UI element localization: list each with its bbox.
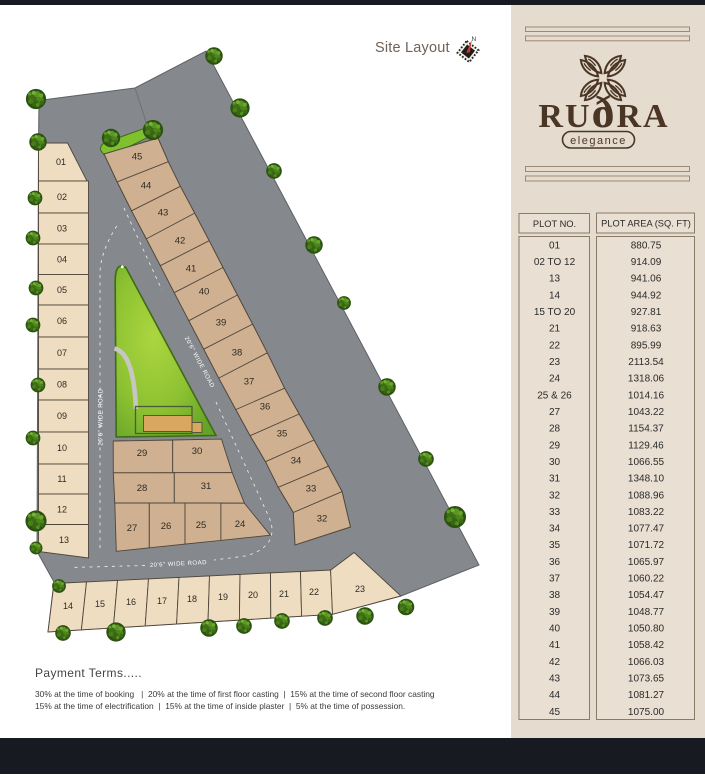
svg-text:880.75: 880.75 — [631, 240, 662, 251]
svg-text:1075.00: 1075.00 — [628, 707, 665, 718]
svg-text:30: 30 — [549, 457, 561, 468]
svg-text:Site Layout: Site Layout — [375, 40, 450, 56]
svg-text:35: 35 — [549, 540, 561, 551]
svg-text:18: 18 — [187, 594, 197, 604]
svg-text:03: 03 — [57, 224, 67, 234]
svg-text:36: 36 — [549, 557, 561, 568]
svg-text:43: 43 — [158, 208, 169, 219]
svg-text:30% at the time of booking |: 30% at the time of booking | 20% at the … — [35, 689, 435, 699]
svg-text:42: 42 — [175, 236, 186, 247]
svg-text:1318.06: 1318.06 — [628, 374, 665, 385]
svg-text:31: 31 — [201, 481, 212, 492]
svg-text:PLOT AREA (SQ. FT): PLOT AREA (SQ. FT) — [601, 219, 691, 229]
svg-text:1043.22: 1043.22 — [628, 407, 665, 418]
svg-text:44: 44 — [141, 181, 152, 192]
svg-text:01: 01 — [56, 157, 66, 167]
svg-text:1065.97: 1065.97 — [628, 557, 665, 568]
svg-text:1054.47: 1054.47 — [628, 590, 665, 601]
svg-text:PLOT NO.: PLOT NO. — [533, 219, 576, 229]
svg-text:45: 45 — [132, 152, 143, 163]
svg-text:20: 20 — [248, 590, 258, 600]
svg-text:02: 02 — [57, 192, 67, 202]
svg-text:2113.54: 2113.54 — [628, 357, 664, 368]
svg-text:25: 25 — [196, 520, 207, 531]
svg-text:10: 10 — [57, 443, 67, 453]
svg-text:44: 44 — [549, 690, 561, 701]
svg-text:13: 13 — [59, 535, 69, 545]
svg-text:25 & 26: 25 & 26 — [537, 390, 572, 401]
svg-text:24: 24 — [549, 374, 561, 385]
svg-text:38: 38 — [549, 590, 561, 601]
svg-text:40: 40 — [199, 287, 210, 298]
svg-text:37: 37 — [244, 377, 255, 388]
svg-text:39: 39 — [216, 318, 227, 329]
svg-text:35: 35 — [277, 429, 288, 440]
svg-text:21: 21 — [279, 589, 289, 599]
svg-text:32: 32 — [549, 490, 561, 501]
svg-text:1050.80: 1050.80 — [628, 624, 665, 635]
svg-text:1066.03: 1066.03 — [628, 657, 665, 668]
svg-text:15: 15 — [95, 599, 105, 609]
svg-text:Payment Terms.....: Payment Terms..... — [35, 666, 142, 680]
svg-text:13: 13 — [549, 274, 561, 285]
svg-text:17: 17 — [157, 596, 167, 606]
svg-text:15% at the time of electrifica: 15% at the time of electrification | 15%… — [35, 701, 405, 711]
svg-text:895.99: 895.99 — [631, 340, 662, 351]
svg-text:1129.46: 1129.46 — [628, 440, 664, 451]
svg-text:42: 42 — [549, 657, 561, 668]
svg-text:11: 11 — [57, 474, 66, 484]
svg-text:1077.47: 1077.47 — [628, 524, 665, 535]
svg-text:918.63: 918.63 — [631, 324, 662, 335]
svg-text:04: 04 — [57, 254, 67, 264]
svg-text:941.06: 941.06 — [631, 274, 662, 285]
svg-text:14: 14 — [63, 601, 73, 611]
svg-text:N: N — [472, 36, 477, 43]
svg-text:elegance: elegance — [570, 135, 627, 147]
svg-text:27: 27 — [549, 407, 561, 418]
svg-text:07: 07 — [57, 348, 67, 358]
svg-text:26: 26 — [161, 521, 172, 532]
svg-text:34: 34 — [549, 524, 561, 535]
svg-text:38: 38 — [232, 348, 243, 359]
svg-text:33: 33 — [549, 507, 561, 518]
svg-text:36: 36 — [260, 402, 271, 413]
svg-text:29: 29 — [137, 448, 148, 459]
svg-text:01: 01 — [549, 240, 561, 251]
svg-text:914.09: 914.09 — [631, 257, 662, 268]
svg-text:37: 37 — [549, 574, 561, 585]
svg-text:1073.65: 1073.65 — [628, 674, 665, 685]
svg-text:1088.96: 1088.96 — [628, 490, 665, 501]
svg-text:22: 22 — [549, 340, 561, 351]
svg-text:02 TO 12: 02 TO 12 — [534, 257, 576, 268]
svg-text:1154.37: 1154.37 — [628, 424, 664, 435]
svg-text:15 TO 20: 15 TO 20 — [534, 307, 576, 318]
svg-text:1066.55: 1066.55 — [628, 457, 665, 468]
svg-text:19: 19 — [218, 592, 228, 602]
svg-text:09: 09 — [57, 411, 67, 421]
svg-text:45: 45 — [549, 707, 561, 718]
svg-text:32: 32 — [317, 514, 328, 525]
svg-text:16: 16 — [126, 597, 136, 607]
svg-text:20'6" WIDE ROAD: 20'6" WIDE ROAD — [99, 388, 105, 445]
svg-text:40: 40 — [549, 624, 561, 635]
svg-text:28: 28 — [137, 483, 148, 494]
svg-text:06: 06 — [57, 316, 67, 326]
svg-text:41: 41 — [186, 264, 197, 275]
svg-text:08: 08 — [57, 380, 67, 390]
svg-text:33: 33 — [306, 484, 317, 495]
svg-text:1060.22: 1060.22 — [628, 574, 665, 585]
svg-text:1014.16: 1014.16 — [628, 390, 665, 401]
svg-text:41: 41 — [549, 640, 561, 651]
svg-text:27: 27 — [127, 523, 138, 534]
svg-text:05: 05 — [57, 285, 67, 295]
svg-text:14: 14 — [549, 290, 561, 301]
svg-text:28: 28 — [549, 424, 561, 435]
svg-text:34: 34 — [291, 456, 302, 467]
svg-text:927.81: 927.81 — [631, 307, 662, 318]
svg-text:24: 24 — [235, 519, 246, 530]
svg-text:21: 21 — [549, 324, 561, 335]
svg-text:1048.77: 1048.77 — [628, 607, 665, 618]
svg-text:31: 31 — [549, 474, 561, 485]
svg-text:23: 23 — [355, 584, 365, 594]
svg-text:1348.10: 1348.10 — [628, 474, 665, 485]
svg-text:29: 29 — [549, 440, 561, 451]
svg-text:30: 30 — [192, 446, 203, 457]
svg-text:1083.22: 1083.22 — [628, 507, 665, 518]
svg-text:1071.72: 1071.72 — [628, 540, 665, 551]
svg-text:12: 12 — [57, 505, 67, 515]
svg-text:23: 23 — [549, 357, 561, 368]
svg-text:22: 22 — [309, 587, 319, 597]
svg-text:39: 39 — [549, 607, 561, 618]
svg-text:944.92: 944.92 — [631, 290, 662, 301]
svg-text:1058.42: 1058.42 — [628, 640, 665, 651]
svg-text:43: 43 — [549, 674, 561, 685]
svg-text:1081.27: 1081.27 — [628, 690, 665, 701]
